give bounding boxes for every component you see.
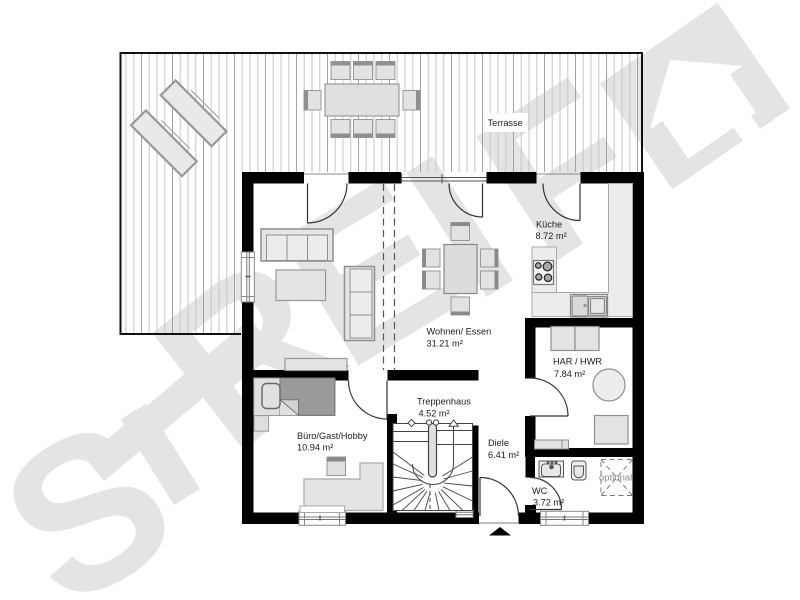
svg-text:10.94 m²: 10.94 m² <box>297 443 333 453</box>
svg-text:optional: optional <box>599 473 632 484</box>
svg-text:Treppenhaus: Treppenhaus <box>417 397 471 407</box>
svg-text:31.21 m²: 31.21 m² <box>427 339 463 349</box>
svg-text:8.72 m²: 8.72 m² <box>536 231 567 241</box>
svg-text:6.41 m²: 6.41 m² <box>488 450 519 460</box>
svg-text:Wohnen/ Essen: Wohnen/ Essen <box>427 327 492 337</box>
svg-text:Terrasse: Terrasse <box>488 118 523 128</box>
svg-text:3.72 m²: 3.72 m² <box>533 498 564 508</box>
svg-text:4.52 m²: 4.52 m² <box>419 409 450 419</box>
svg-text:Diele: Diele <box>488 438 509 448</box>
svg-text:WC: WC <box>532 486 548 496</box>
svg-text:HAR / HWR: HAR / HWR <box>553 357 602 367</box>
svg-text:7.84 m²: 7.84 m² <box>554 369 585 379</box>
svg-text:Küche: Küche <box>536 220 562 230</box>
svg-text:Büro/Gast/Hobby: Büro/Gast/Hobby <box>297 431 368 441</box>
